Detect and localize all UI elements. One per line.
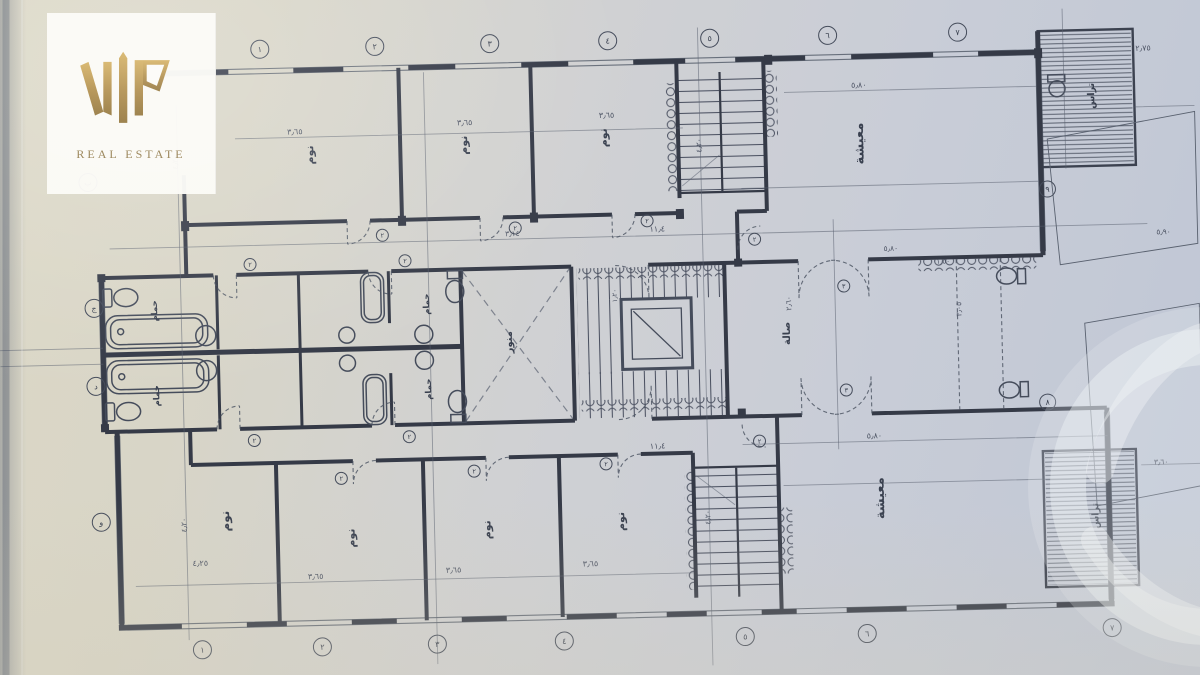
svg-text:نوم: نوم [597, 128, 610, 147]
svg-text:٢: ٢ [339, 475, 343, 483]
svg-text:معيشة: معيشة [872, 477, 888, 519]
svg-text:٤: ٤ [562, 637, 567, 646]
svg-text:حمام: حمام [152, 385, 163, 406]
svg-text:٦: ٦ [865, 629, 870, 638]
photo-edge [6, 0, 22, 675]
svg-text:٣٫٦٥: ٣٫٦٥ [599, 111, 615, 120]
svg-text:٢: ٢ [253, 437, 257, 445]
svg-text:١١٫٤: ١١٫٤ [650, 441, 666, 450]
elevator [621, 298, 693, 370]
svg-text:٢: ٢ [604, 460, 608, 468]
bathroom-fixtures [102, 257, 1028, 432]
svg-text:٢: ٢ [403, 257, 407, 265]
svg-text:نوم: نوم [218, 511, 234, 532]
svg-text:٥: ٥ [707, 34, 712, 43]
svg-text:٣: ٣ [842, 282, 846, 290]
svg-text:٢: ٢ [373, 42, 378, 51]
svg-text:٣: ٣ [844, 386, 848, 394]
svg-text:نوم: نوم [303, 145, 316, 164]
svg-text:٣٫٦٥: ٣٫٦٥ [308, 572, 324, 581]
svg-text:د: د [94, 382, 98, 391]
svg-text:١٫٢٠: ١٫٢٠ [611, 289, 619, 303]
svg-text:٧: ٧ [955, 28, 960, 37]
svg-text:و: و [98, 518, 103, 527]
floorplan-photo: معيشةمعيشةنومنومنومنومنومنومنوممنورصالةح… [0, 0, 1200, 675]
hall-threshold [918, 257, 1040, 410]
svg-text:حمام: حمام [422, 293, 433, 314]
svg-text:معيشة: معيشة [852, 123, 868, 165]
svg-text:٤٫٢٥: ٤٫٢٥ [192, 559, 208, 568]
svg-text:٣٫٦٥: ٣٫٦٥ [287, 127, 303, 136]
svg-text:٢: ٢ [645, 217, 649, 225]
svg-text:نوم: نوم [457, 136, 470, 155]
svg-text:٦: ٦ [825, 31, 830, 40]
vip-real-estate-logo: REAL ESTATE [47, 13, 216, 194]
svg-text:٢: ٢ [320, 643, 325, 652]
plan-labels: معيشةمعيشةنومنومنومنومنومنومنوممنورصالةح… [76, 18, 1181, 661]
svg-text:ج: ج [91, 304, 97, 313]
svg-text:٤: ٤ [605, 37, 610, 46]
svg-text:٥: ٥ [743, 632, 748, 641]
svg-text:حمام: حمام [424, 378, 435, 399]
svg-text:صالة: صالة [782, 322, 794, 346]
svg-text:٢: ٢ [248, 261, 252, 269]
svg-text:منور: منور [504, 331, 516, 355]
vip-monogram-icon [71, 45, 191, 137]
svg-text:٢٫٧٥: ٢٫٧٥ [1135, 43, 1151, 52]
svg-text:٤٫٢٠: ٤٫٢٠ [703, 510, 712, 525]
svg-text:٤٫٢٠: ٤٫٢٠ [179, 518, 188, 533]
svg-text:٢: ٢ [407, 433, 411, 441]
svg-text:٢: ٢ [758, 437, 762, 445]
svg-text:٣٫٦٥: ٣٫٦٥ [457, 118, 473, 127]
svg-text:٣٫٠٥: ٣٫٠٥ [954, 302, 963, 317]
svg-text:نوم: نوم [480, 520, 493, 539]
svg-text:٣٫٦٥: ٣٫٦٥ [446, 565, 462, 574]
svg-text:٢: ٢ [472, 467, 476, 475]
svg-text:٢: ٢ [753, 235, 757, 243]
svg-text:تراس: تراس [1086, 83, 1098, 109]
svg-text:١٫٥٠: ١٫٥٠ [936, 257, 950, 265]
svg-text:٤٫٢٠: ٤٫٢٠ [694, 138, 703, 153]
svg-text:٥٫٨٠: ٥٫٨٠ [883, 244, 898, 253]
svg-text:٣: ٣ [487, 39, 492, 48]
svg-text:١١٫٤: ١١٫٤ [649, 224, 665, 233]
svg-text:نوم: نوم [345, 528, 358, 547]
svg-text:حمام: حمام [150, 300, 161, 321]
svg-text:٣٫٦٥: ٣٫٦٥ [583, 559, 599, 568]
watermark-circle-logo [1028, 307, 1200, 667]
svg-text:٢: ٢ [381, 232, 385, 240]
svg-text:نوم: نوم [614, 512, 627, 531]
svg-text:١: ١ [200, 646, 205, 655]
svg-text:٥٫٨٠: ٥٫٨٠ [867, 431, 883, 440]
svg-text:٢: ٢ [513, 224, 517, 232]
svg-text:٥٫٨٠: ٥٫٨٠ [851, 80, 867, 89]
svg-text:٣: ٣ [435, 640, 440, 649]
svg-text:٥٫٩٠: ٥٫٩٠ [1156, 227, 1171, 236]
svg-text:١: ١ [258, 45, 263, 54]
light-well [462, 269, 573, 422]
svg-text:٩: ٩ [1045, 185, 1050, 194]
svg-text:٢٫٦٠: ٢٫٦٠ [784, 296, 793, 311]
logo-subtitle: REAL ESTATE [76, 147, 185, 162]
